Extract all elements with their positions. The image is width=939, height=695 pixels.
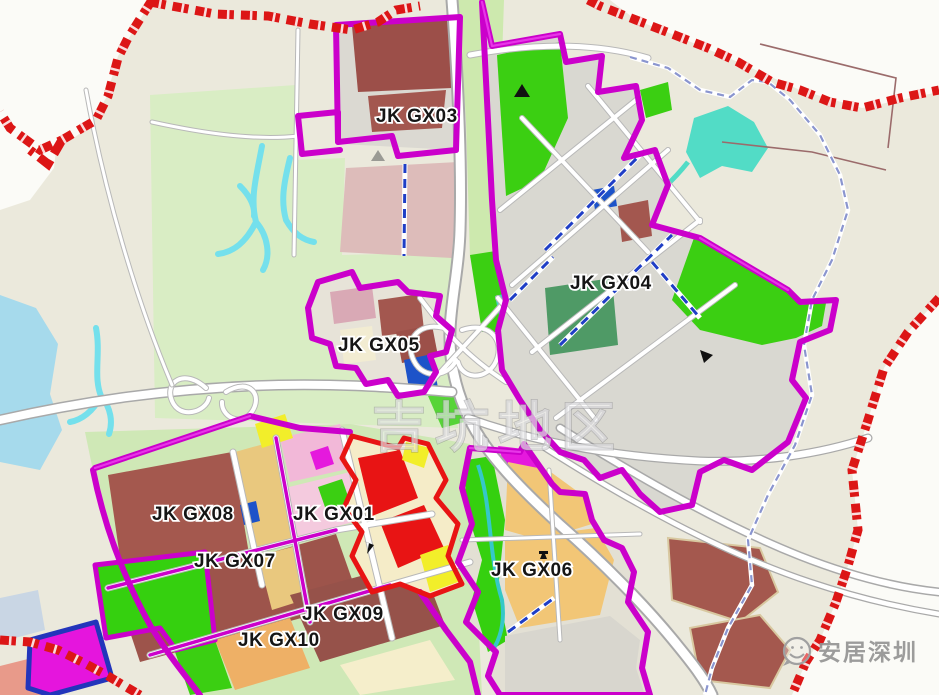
zone-label-gx10[interactable]: JK GX10 <box>238 630 320 651</box>
zone-gx03-parcels <box>336 17 460 150</box>
zone-label-gx03[interactable]: JK GX03 <box>376 106 458 127</box>
zone-label-gx07[interactable]: JK GX07 <box>194 551 276 572</box>
brand-logo-icon <box>784 638 810 664</box>
watermark-text: 吉坑地区 <box>372 396 624 459</box>
zone-label-gx05[interactable]: JK GX05 <box>338 335 420 356</box>
planning-map: 吉坑地区 JK GX03 JK GX04 JK GX05 JK GX08 JK … <box>0 0 939 695</box>
zone-label-gx09[interactable]: JK GX09 <box>302 604 384 625</box>
brand-text: 安居深圳 <box>818 639 918 666</box>
zone-label-gx04[interactable]: JK GX04 <box>570 273 652 294</box>
brand-watermark: 安居深圳 <box>783 638 918 666</box>
zone-label-gx08[interactable]: JK GX08 <box>152 504 234 525</box>
zone-label-gx06[interactable]: JK GX06 <box>491 560 573 581</box>
zone-label-gx01[interactable]: JK GX01 <box>293 504 375 525</box>
